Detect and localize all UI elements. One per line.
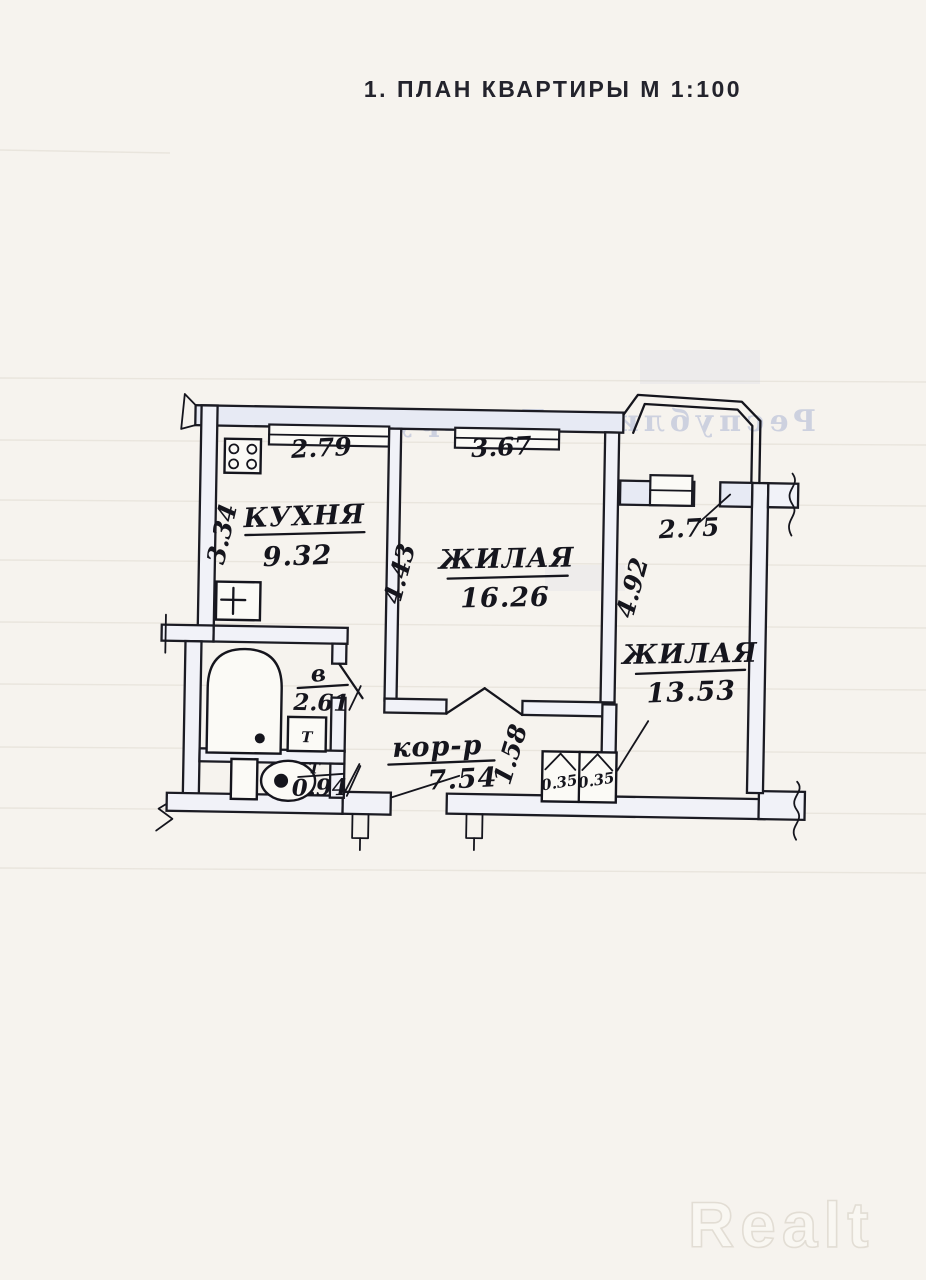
wall-end-cap [181, 394, 196, 429]
door-opening-leaf [446, 688, 484, 715]
wall-bath-right-upper [332, 644, 346, 664]
wall-living1-right [600, 432, 619, 704]
kitchen-name: КУХНЯ [242, 499, 366, 534]
living2-name: ЖИЛАЯ [620, 638, 758, 671]
living2-label: ЖИЛАЯ 13.53 [619, 635, 759, 711]
label-slash [349, 686, 360, 710]
wall-ledge-left [162, 625, 214, 642]
corridor-name: кор-р [392, 730, 483, 764]
kitchen-label: КУХНЯ 9.32 [241, 497, 367, 575]
bathroom-label: в 2.61 [292, 659, 361, 717]
wc-area: 0.94 [291, 774, 347, 802]
scan-line [0, 378, 926, 382]
bathroom-area: 2.61 [292, 689, 349, 717]
wall-living1-bottom-left [384, 699, 446, 714]
scan-line [0, 150, 170, 153]
bathroom-name: в [310, 660, 327, 688]
realt-watermark: Realt [688, 1189, 875, 1261]
wall-step-bottom-right [758, 791, 804, 820]
wall-living1-bottom-right [522, 701, 614, 717]
stove-body [224, 439, 261, 474]
dim-living1-width: 3.67 [470, 431, 533, 463]
section-tick [165, 615, 166, 653]
toilet-tank [231, 759, 258, 799]
corridor-label: кор-р 7.54 [388, 728, 499, 798]
floor-plan: Т 2.79 3.67 3.34 4.43 4.92 2.75 1.58 0.3… [156, 387, 812, 858]
bathtub-icon [207, 648, 283, 753]
living1-name: ЖИЛАЯ [437, 542, 575, 575]
floorplan-canvas: 1. ПЛАН КВАРТИРЫ М 1:100 Республика Бела… [0, 0, 926, 1280]
wall-kitchen-bottom [213, 626, 347, 644]
wall-step-bottom [343, 792, 391, 815]
door-opening-leaf [484, 688, 522, 715]
water-heater-icon: Т [288, 717, 327, 752]
wall-under-balcony-right [720, 482, 752, 507]
leader-closets [617, 721, 648, 772]
corridor-area: 7.54 [427, 762, 498, 797]
living1-area: 16.26 [460, 582, 550, 615]
kitchen-area: 9.32 [262, 540, 333, 573]
sink-icon [216, 582, 261, 621]
ink-smudge [640, 350, 760, 384]
scan-line [0, 684, 926, 690]
living2-area: 13.53 [646, 675, 737, 709]
dim-balcony-width: 2.75 [657, 512, 720, 544]
scan-line [0, 622, 926, 628]
bathtub-outline [207, 648, 283, 753]
wall-corridor-right [602, 704, 617, 754]
window-sill-line [650, 490, 692, 491]
dim-living1-depth: 4.43 [378, 541, 422, 607]
scan-line [0, 868, 926, 873]
scanned-floorplan-page: 1. ПЛАН КВАРТИРЫ М 1:100 Республика Бела… [0, 0, 926, 1280]
wall-segment-left-lower [183, 641, 202, 795]
page-title: 1. ПЛАН КВАРТИРЫ М 1:100 [364, 76, 742, 102]
threshold-mark [466, 814, 482, 838]
threshold-mark [352, 814, 368, 838]
stove-icon [224, 439, 261, 474]
dim-kitchen-width: 2.79 [289, 432, 352, 464]
